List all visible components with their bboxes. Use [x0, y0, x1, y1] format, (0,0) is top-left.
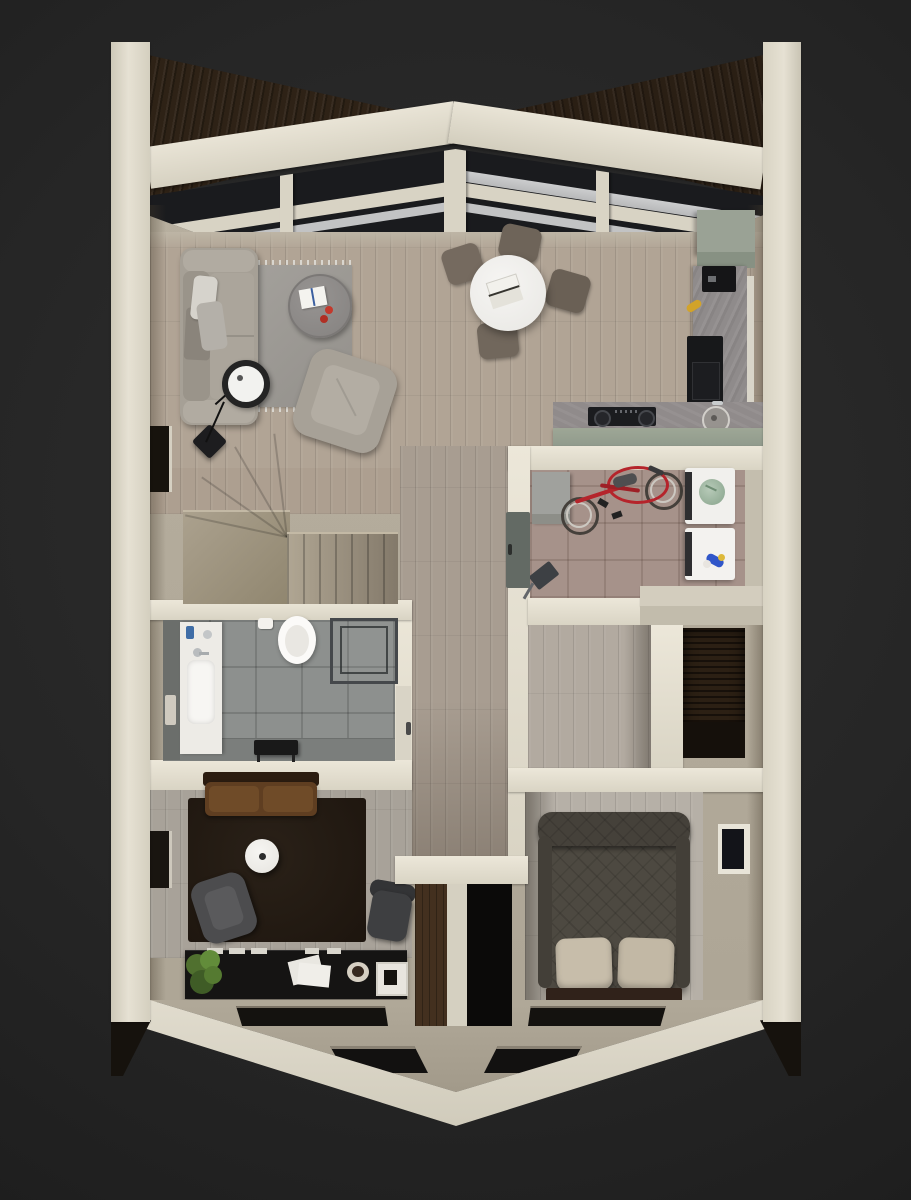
floor-window-slot: [484, 1046, 582, 1073]
gable-beam-left: [145, 101, 460, 189]
floorplan-render: [0, 0, 911, 1200]
skylight-glass-strip: [147, 136, 457, 194]
roof-deck-right: [148, 55, 763, 205]
interior-base-slab: [150, 200, 763, 1002]
floor-window-slot: [528, 1006, 666, 1026]
sloped-floor: [150, 992, 763, 1097]
right-exterior-wall: [763, 42, 801, 1022]
bottom-v-wall: [111, 992, 801, 1137]
left-exterior-wall: [111, 42, 150, 1022]
floor-window-slot: [330, 1046, 428, 1073]
wall-foot-right: [760, 1018, 801, 1076]
roof-deck-left: [148, 55, 763, 205]
gable-beam-right: [448, 101, 767, 189]
floor-window-slot: [236, 1006, 388, 1026]
wall-foot-left: [111, 1018, 151, 1076]
